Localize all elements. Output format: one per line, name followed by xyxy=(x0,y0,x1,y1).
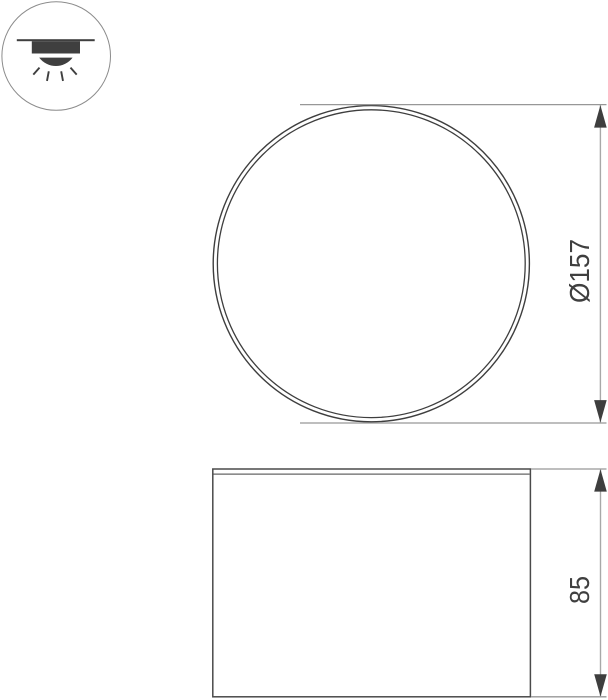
svg-text:Ø157: Ø157 xyxy=(564,239,595,303)
svg-text:85: 85 xyxy=(564,576,595,604)
